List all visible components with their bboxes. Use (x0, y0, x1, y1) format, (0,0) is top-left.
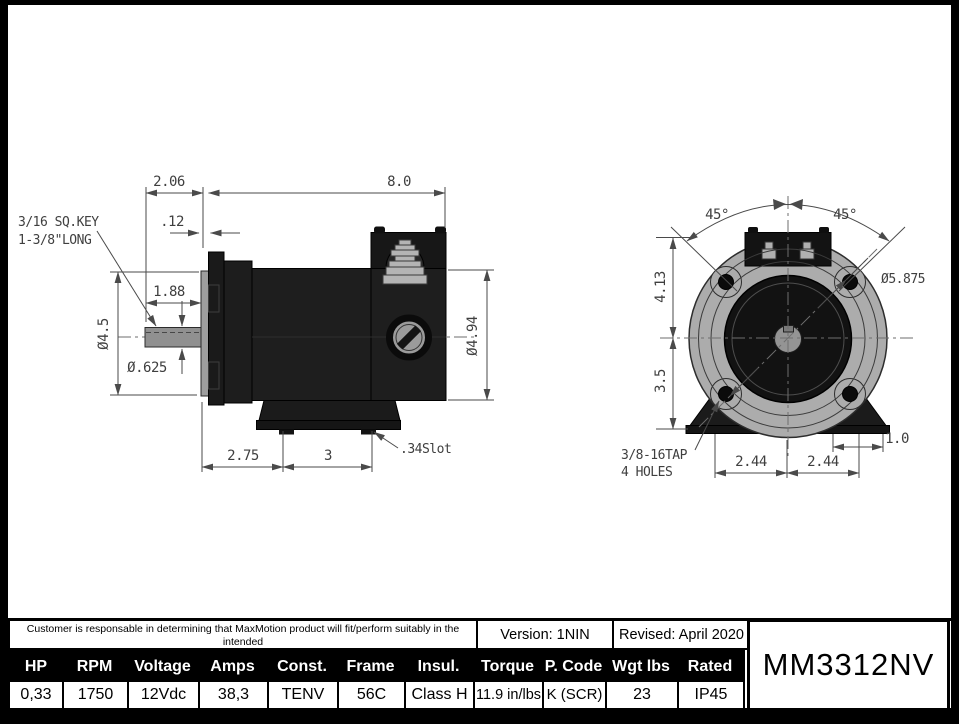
spec-value-wgt: 23 (605, 680, 679, 710)
model-number-cell: MM3312NV (747, 619, 950, 711)
spec-header-rated: Rated (677, 652, 743, 682)
box-bump (435, 227, 446, 234)
spec-header-pcode: P. Code (542, 652, 605, 682)
dim-2-44-left: 2.44 (735, 454, 767, 470)
side-base-plate (257, 421, 401, 430)
spec-value-rated: IP45 (677, 680, 745, 710)
spec-header-insul: Insul. (404, 652, 473, 682)
dim-1-0: 1.0 (885, 431, 909, 447)
side-slot-tab (279, 430, 294, 435)
box-bump (748, 227, 758, 233)
dim-4-13: 4.13 (653, 271, 669, 303)
spec-value-rpm: 1750 (62, 680, 129, 710)
dim-3: 3 (324, 448, 332, 464)
spec-value-const: TENV (267, 680, 339, 710)
box-bump (819, 227, 829, 233)
spec-value-hp: 0,33 (8, 680, 64, 710)
dim-3-5: 3.5 (653, 369, 669, 393)
tap-note-line2: 4 HOLES (621, 465, 672, 480)
motor-side-view: 3/16 SQ.KEY 1-3/8"LONG 2.06 8.0 .12 1.88… (18, 174, 494, 472)
dim-2-75: 2.75 (227, 448, 259, 464)
front-housing (224, 261, 252, 403)
spec-header-amps: Amps (198, 652, 267, 682)
spec-value-insul: Class H (404, 680, 475, 710)
arc-arrow (790, 199, 803, 210)
arc-arrow (773, 199, 786, 210)
version-label: Version: 1NIN (500, 627, 589, 643)
spec-header-rpm: RPM (62, 652, 127, 682)
version-cell: Version: 1NIN (476, 619, 614, 650)
dia-0-625: Ø.625 (127, 360, 167, 376)
spec-header-frame: Frame (337, 652, 404, 682)
spec-header-torque: Torque (473, 652, 542, 682)
dia-4-5: Ø4.5 (96, 318, 112, 350)
motor-front-view: 45° 45° 4.13 3.5 Ø5.875 2.44 2.44 1.0 3/… (621, 196, 925, 480)
dia-4-94: Ø4.94 (465, 316, 481, 356)
spec-header-voltage: Voltage (127, 652, 198, 682)
disclaimer-line1: Customer is responsable in determining t… (10, 623, 476, 648)
motor-shaft (145, 328, 202, 348)
spec-value-voltage: 12Vdc (127, 680, 200, 710)
dim-2-44-right: 2.44 (807, 454, 839, 470)
slot-note: .34Slot (400, 442, 451, 457)
revised-label: Revised: April 2020 (619, 627, 744, 643)
spec-value-torque: 11.9 in/lbs (473, 680, 544, 710)
spec-header-const: Const. (267, 652, 337, 682)
model-number: MM3312NV (763, 647, 935, 683)
key-note-line2: 1-3/8"LONG (18, 233, 92, 248)
dim-8-0: 8.0 (387, 174, 411, 190)
front-endbell (209, 252, 225, 405)
motor-technical-drawing: 3/16 SQ.KEY 1-3/8"LONG 2.06 8.0 .12 1.88… (0, 0, 959, 619)
dim-2-06: 2.06 (153, 174, 185, 190)
key-note-line1: 3/16 SQ.KEY (18, 215, 99, 230)
spec-value-frame: 56C (337, 680, 406, 710)
drawing-sheet: 3/16 SQ.KEY 1-3/8"LONG 2.06 8.0 .12 1.88… (0, 0, 959, 724)
dim-0-12: .12 (160, 214, 184, 230)
dia-5-875: Ø5.875 (881, 272, 925, 287)
spec-header-hp: HP (10, 652, 62, 682)
box-bump (374, 227, 385, 234)
spec-value-amps: 38,3 (198, 680, 269, 710)
angle-right-label: 45° (833, 207, 857, 223)
spec-value-pcode: K (SCR) (542, 680, 607, 710)
dim-1-88: 1.88 (153, 284, 185, 300)
angle-left-label: 45° (705, 207, 729, 223)
disclaimer-cell: Customer is responsable in determining t… (8, 619, 478, 650)
revised-cell: Revised: April 2020 (612, 619, 751, 650)
spec-header-wgt: Wgt lbs (605, 652, 677, 682)
side-slot-tab (361, 430, 376, 435)
flange-plate (201, 271, 209, 396)
tap-note-line1: 3/8-16TAP (621, 448, 688, 463)
